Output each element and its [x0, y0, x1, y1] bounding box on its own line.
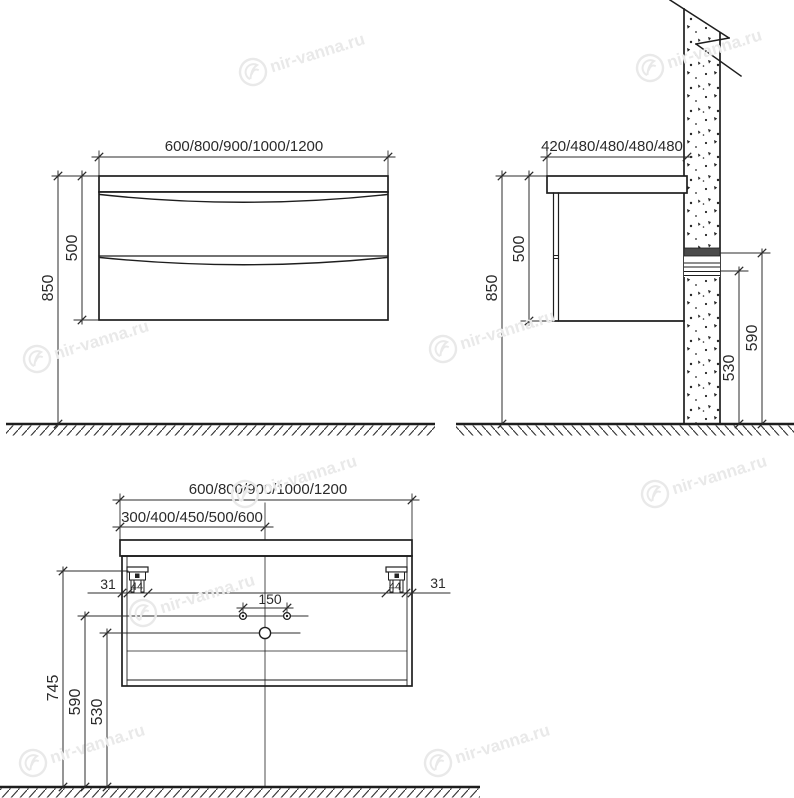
floor-hatching — [6, 426, 435, 436]
side-depth-label: 420/480/480/480/480 — [541, 138, 683, 155]
front-mount-height-label: 850 — [40, 275, 57, 302]
floor-front — [6, 424, 435, 436]
edge-offset-right-label: 31 — [430, 575, 446, 591]
watermark-text: nir-vanna.ru — [52, 316, 152, 363]
supply-hole-left — [240, 613, 247, 620]
rear-bowl-center-label: 300/400/450/500/600 — [121, 509, 263, 526]
side-rail-height-label: 590 — [744, 325, 761, 352]
watermark-text: nir-vanna.ru — [453, 720, 553, 767]
bracket-width-left-label: 44 — [131, 581, 143, 593]
watermark-text: nir-vanna.ru — [158, 570, 258, 617]
watermarks: nir-vanna.runir-vanna.runir-vanna.runir-… — [17, 22, 770, 780]
floor-hatching — [456, 426, 794, 436]
side-rail-bottom-label: 530 — [721, 355, 738, 382]
side-cabinet-height-label: 500 — [511, 236, 528, 263]
side-countertop — [547, 176, 687, 193]
watermark-text: nir-vanna.ru — [268, 29, 368, 76]
watermark-text: nir-vanna.ru — [458, 306, 558, 353]
drain-hole — [259, 627, 270, 638]
drawing-svg: 600/800/900/1000/1200 500 850 420/480/48… — [0, 0, 794, 798]
watermark-logo-swirl — [24, 754, 41, 771]
rear-cabinet-body — [122, 556, 412, 686]
front-width-label: 600/800/900/1000/1200 — [165, 138, 324, 155]
supply-hole-right — [284, 613, 291, 620]
watermark: nir-vanna.ru — [639, 448, 770, 511]
rear-countertop — [120, 540, 412, 556]
watermark-logo-swirl — [429, 754, 446, 771]
watermark-logo-swirl — [646, 485, 663, 502]
side-view: 420/480/480/480/480 500 850 590 530 — [484, 0, 770, 424]
watermark: nir-vanna.ru — [229, 448, 360, 511]
watermark-logo-swirl — [641, 59, 658, 76]
watermark: nir-vanna.ru — [237, 26, 368, 89]
floor-side — [456, 424, 794, 436]
watermark-logo-swirl — [434, 340, 451, 357]
watermark-logo-swirl — [244, 63, 261, 80]
watermark: nir-vanna.ru — [21, 313, 152, 376]
front-view: 600/800/900/1000/1200 500 850 — [40, 138, 395, 424]
bracket-width-right-label: 44 — [389, 581, 401, 593]
front-countertop — [99, 176, 388, 192]
side-mount-height-label: 850 — [484, 275, 501, 302]
supply-height-label: 590 — [67, 689, 84, 716]
watermark: nir-vanna.ru — [127, 567, 258, 630]
bracket-height-label: 745 — [45, 675, 62, 702]
technical-drawing: 600/800/900/1000/1200 500 850 420/480/48… — [0, 0, 794, 798]
wall — [684, 9, 720, 424]
watermark-logo-swirl — [28, 350, 45, 367]
watermark-text: nir-vanna.ru — [670, 451, 770, 498]
watermark: nir-vanna.ru — [422, 717, 553, 780]
front-cabinet-height-label: 500 — [64, 235, 81, 262]
floor-rear — [0, 787, 480, 798]
watermark: nir-vanna.ru — [17, 717, 148, 780]
watermark-logo-swirl — [134, 604, 151, 621]
floor-hatching — [0, 789, 480, 798]
edge-offset-left-label: 31 — [100, 576, 116, 592]
drain-height-label: 530 — [89, 699, 106, 726]
mounting-rail — [684, 248, 720, 256]
bracket-screw — [395, 574, 400, 579]
bracket-screw — [135, 574, 140, 579]
watermark: nir-vanna.ru — [427, 303, 558, 366]
faucet-spacing-label: 150 — [258, 591, 282, 607]
